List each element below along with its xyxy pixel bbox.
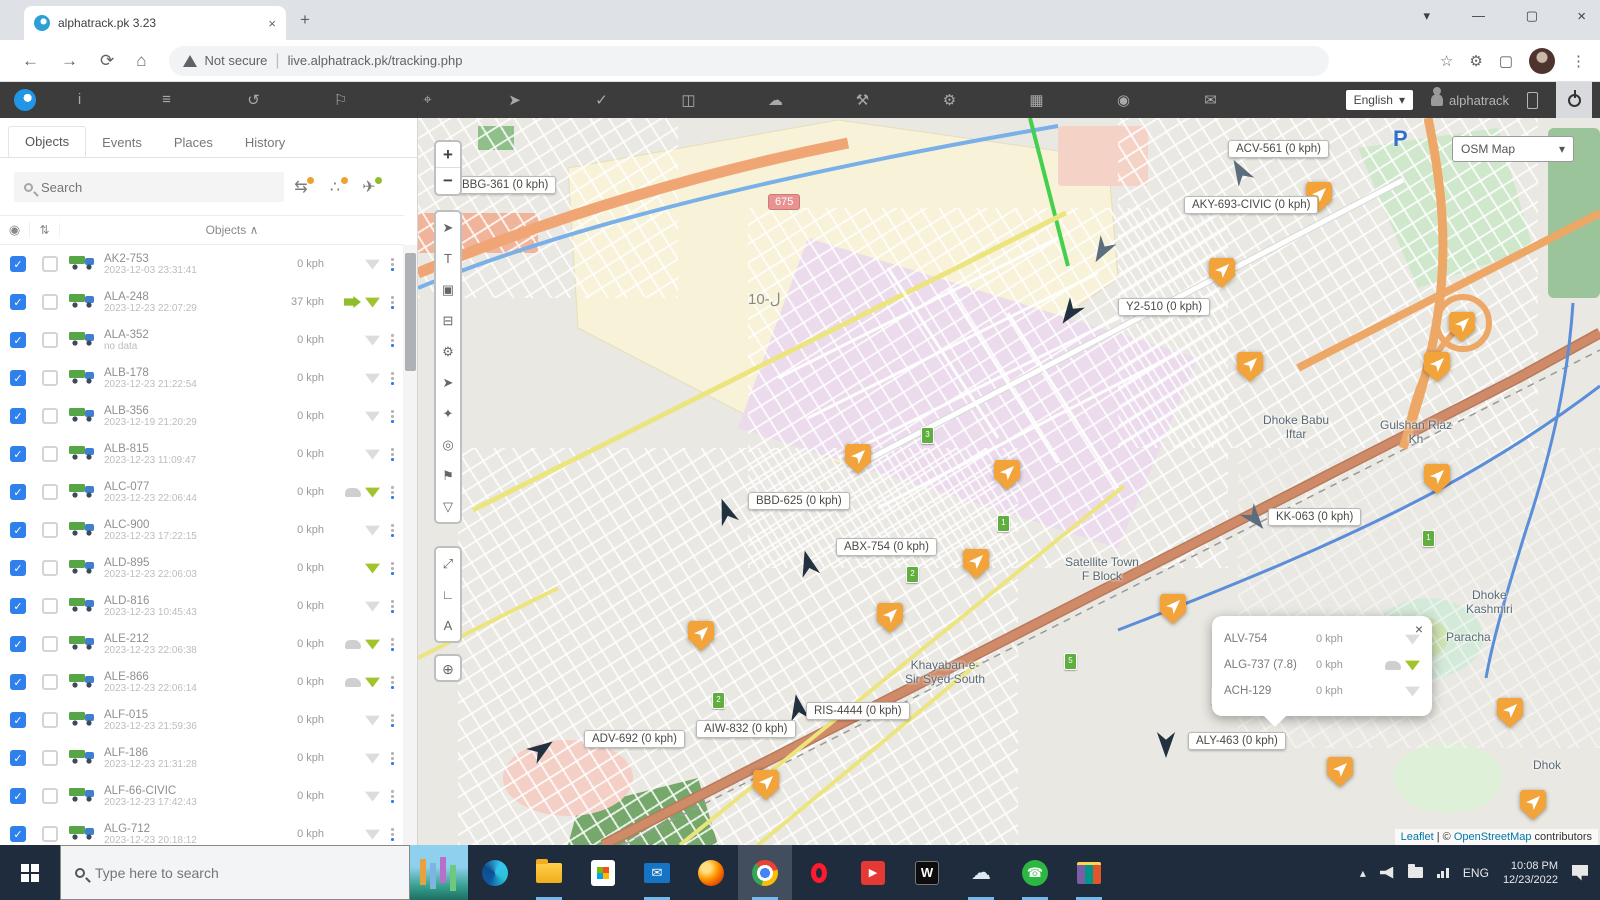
text-label-icon[interactable]: T [436,243,460,274]
taskbar-chrome-icon[interactable] [738,845,792,900]
visibility-checkbox[interactable]: ✓ [10,598,26,614]
truck-icon [68,405,98,428]
vehicle-marker[interactable] [1497,698,1523,728]
network-icon[interactable] [1437,868,1449,878]
back-button[interactable]: ← [22,51,39,71]
row-menu-icon[interactable] [380,296,404,309]
object-row[interactable]: ✓ ALF-66-CIVIC 2023-12-23 17:42:43 0 kph [0,777,404,815]
object-status-icons [324,601,380,612]
object-row[interactable]: ✓ ALF-186 2023-12-23 21:31:28 0 kph [0,739,404,777]
object-row[interactable]: ✓ ALE-212 2023-12-23 22:06:38 0 kph [0,625,404,663]
vehicle-marker[interactable] [1327,757,1353,787]
signal-gray-icon [365,753,380,764]
visibility-eye-icon[interactable]: ◉ [0,222,30,238]
vehicle-label[interactable]: KK-063 (0 kph) [1268,508,1361,526]
object-speed: 0 kph [272,600,324,612]
object-row[interactable]: ✓ ALB-178 2023-12-23 21:22:54 0 kph [0,359,404,397]
sidepanel-icon[interactable]: ▢ [1499,52,1513,70]
visibility-icon[interactable]: ◎ [436,429,460,460]
bookmarks-icon[interactable]: ✦ [436,398,460,429]
object-name: ALA-352 [104,329,272,341]
vehicle-marker[interactable] [1237,352,1263,382]
popup-close-icon[interactable]: × [1415,621,1423,637]
vehicles-sync-icon[interactable]: ⇆ [284,177,318,197]
arrow-green-icon [344,296,361,308]
popup-object-speed: 0 kph [1316,659,1364,671]
object-name: ALD-895 [104,557,272,569]
row-menu-icon[interactable] [380,410,404,423]
object-status-icons [324,259,380,270]
share-icon[interactable]: ∴ [318,177,352,197]
truck-icon [68,519,98,542]
taskbar-explorer-icon[interactable] [522,845,576,900]
window-close-button[interactable]: × [1577,8,1586,25]
object-speed: 0 kph [272,372,324,384]
vehicle-label[interactable]: Y2-510 (0 kph) [1118,298,1210,316]
row-menu-icon[interactable] [380,258,404,271]
object-name: ALG-712 [104,823,272,835]
vehicles-icon[interactable]: ⊟ [436,305,460,336]
profile-avatar[interactable] [1529,48,1555,74]
object-datetime: 2023-12-23 22:06:38 [104,645,272,656]
truck-icon [68,633,98,656]
places-icon[interactable]: ⚐ [297,91,384,109]
measure-icon[interactable]: ➤ [471,91,558,109]
zoom-icon[interactable]: ⌖ [384,91,471,109]
select-checkbox[interactable] [42,256,58,272]
object-row[interactable]: ✓ ALF-015 2023-12-23 21:59:36 0 kph [0,701,404,739]
truck-icon [68,823,98,846]
object-name: ALE-212 [104,633,272,645]
tab-title: alphatrack.pk 3.23 [58,16,260,30]
select-checkbox[interactable] [42,332,58,348]
vehicle-label[interactable]: AIW-832 (0 kph) [696,720,796,738]
app-logo-icon[interactable] [14,89,36,111]
objects-list-icon[interactable]: ≡ [123,91,210,109]
transit-stop-marker: 2 [906,566,919,583]
volume-icon[interactable] [1380,867,1394,879]
signal-gray-icon [1405,686,1420,697]
camera-icon[interactable]: ◉ [1080,91,1167,109]
vehicle-marker[interactable] [1449,312,1475,342]
settings-icon[interactable]: ⚙ [436,336,460,367]
vehicle-marker[interactable] [877,603,903,633]
system-tray: ▴ ENG 10:08 PM 12/23/2022 [1360,845,1600,900]
mobile-app-icon[interactable] [1527,92,1538,109]
object-row[interactable]: ✓ ALG-712 2023-12-23 20:18:12 0 kph [0,815,404,845]
place-name-label: Khayaban-e-Sir Syed South [905,658,985,686]
search-input[interactable] [41,180,241,195]
object-status-icons [324,525,380,536]
tab-places[interactable]: Places [158,128,229,157]
news-weather-widget[interactable] [410,845,468,900]
object-name: ALE-866 [104,671,272,683]
row-menu-icon[interactable] [380,676,404,689]
search-box[interactable] [14,172,284,202]
car-gray-icon [1385,661,1401,670]
objects-sort-header[interactable]: Objects ∧ [60,223,404,237]
visibility-checkbox[interactable]: ✓ [10,560,26,576]
row-menu-icon[interactable] [380,562,404,575]
sidebar-search-row: ⇆ ∴ ✈ [0,166,418,208]
truck-icon [68,709,98,732]
vehicle-marker[interactable] [1160,594,1186,624]
vehicle-marker[interactable] [1424,464,1450,494]
new-tab-button[interactable]: + [300,10,310,30]
signal-gray-icon [365,411,380,422]
object-row[interactable]: ✓ ALC-077 2023-12-23 22:06:44 0 kph [0,473,404,511]
explorer-tray-icon[interactable] [1408,867,1423,878]
language-value: English [1354,93,1393,107]
row-menu-icon[interactable] [380,752,404,765]
start-button[interactable] [0,845,60,900]
truck-icon [68,481,98,504]
tray-date: 12/23/2022 [1503,874,1558,886]
object-row[interactable]: ✓ ALD-895 2023-12-23 22:06:03 0 kph [0,549,404,587]
object-status-icons [324,449,380,460]
object-row[interactable]: ✓ AK2-753 2023-12-03 23:31:41 0 kph [0,245,404,283]
taskbar-media-icon[interactable]: ▶ [846,845,900,900]
vehicle-label[interactable]: ADV-692 (0 kph) [584,730,685,748]
visibility-checkbox[interactable]: ✓ [10,712,26,728]
osm-link[interactable]: OpenStreetMap [1454,831,1532,843]
select-checkbox[interactable] [42,408,58,424]
signal-green-icon [1405,660,1420,671]
select-checkbox[interactable] [42,750,58,766]
place-name-label: Satellite TownF Block [1065,555,1139,583]
taskbar-weather-icon[interactable]: ☁ [954,845,1008,900]
tab-objects[interactable]: Objects [8,126,86,157]
table-icon[interactable]: ▦ [993,91,1080,109]
object-name: ALC-077 [104,481,272,493]
row-menu-icon[interactable] [380,600,404,613]
vehicle-marker[interactable] [1520,790,1546,820]
url-text: live.alphatrack.pk/tracking.php [288,53,463,68]
place-name-label: Gulshan RiazKh [1380,418,1452,446]
object-status-icons [324,791,380,802]
map-zoom-control: + − [434,140,462,196]
tools-icon[interactable]: ⚒ [819,91,906,109]
object-name: ALF-186 [104,747,272,759]
signal-green-icon [365,487,380,498]
object-row[interactable]: ✓ ALA-248 2023-12-23 22:07:29 37 kph [0,283,404,321]
select-checkbox[interactable] [42,294,58,310]
truck-icon [68,785,98,808]
zoom-out-button[interactable]: − [436,168,460,194]
signal-green-icon [365,639,380,650]
row-menu-icon[interactable] [380,790,404,803]
select-checkbox[interactable] [42,446,58,462]
object-status-icons [324,296,380,308]
visibility-checkbox[interactable]: ✓ [10,674,26,690]
bookmark-star-icon[interactable]: ☆ [1440,52,1453,70]
object-status-icons [324,373,380,384]
select-checkbox[interactable] [42,370,58,386]
app-toolbar-right: English ▾ alphatrack [1346,82,1600,118]
object-status-icons [324,715,380,726]
object-datetime: 2023-12-23 22:07:29 [104,303,272,314]
select-checkbox[interactable] [42,560,58,576]
map-tools-panel-2: ⤢∟A [434,546,462,643]
tab-history[interactable]: History [229,128,301,157]
object-datetime: 2023-12-23 21:59:36 [104,721,272,732]
row-menu-icon[interactable] [380,486,404,499]
language-indicator[interactable]: ENG [1463,866,1489,880]
vehicle-marker[interactable] [963,549,989,579]
signal-gray-icon [365,791,380,802]
reload-button[interactable]: ⟳ [100,51,114,71]
route-shield: 675 [768,194,800,210]
vehicle-label[interactable]: RIS-4444 (0 kph) [806,702,910,720]
visibility-checkbox[interactable]: ✓ [10,408,26,424]
clock[interactable]: 10:08 PM 12/23/2022 [1503,859,1558,887]
transit-stop-marker: 1 [997,515,1010,532]
object-datetime: 2023-12-03 23:31:41 [104,265,272,276]
car-gray-icon [345,678,361,687]
action-center-icon[interactable] [1572,865,1588,881]
vehicle-label[interactable]: ACV-561 (0 kph) [1228,140,1329,158]
taskbar-store-icon[interactable] [576,845,630,900]
visibility-checkbox[interactable]: ✓ [10,484,26,500]
object-name: ALB-815 [104,443,272,455]
truck-icon [68,253,98,276]
signal-gray-icon [365,373,380,384]
popup-row[interactable]: ALG-737 (7.8)0 kph [1224,652,1420,678]
taskbar-search[interactable] [60,845,410,900]
user-icon [1431,94,1443,106]
object-name: ALC-900 [104,519,272,531]
settings-icon[interactable]: ⚙ [906,91,993,109]
row-menu-icon[interactable] [380,714,404,727]
row-menu-icon[interactable] [380,448,404,461]
tab-close-icon[interactable]: × [268,16,276,31]
leaflet-link[interactable]: Leaflet [1401,831,1434,843]
select-checkbox[interactable] [42,788,58,804]
home-button[interactable]: ⌂ [136,51,146,71]
place-name-label: Paracha [1446,630,1491,644]
layer-value: OSM Map [1461,142,1515,156]
object-speed: 0 kph [272,486,324,498]
select-checkbox[interactable] [42,826,58,842]
username: alphatrack [1449,93,1509,108]
vehicle-label[interactable]: BBD-625 (0 kph) [748,492,850,510]
truck-icon [68,671,98,694]
taskbar-search-input[interactable] [95,865,375,881]
sidebar-tabs: Objects Events Places History [0,126,418,158]
object-row[interactable]: ✓ ALD-816 2023-12-23 10:45:43 0 kph [0,587,404,625]
object-status-icons [324,563,380,574]
visibility-checkbox[interactable]: ✓ [10,332,26,348]
draw-a-icon[interactable]: A [436,610,460,641]
objects-sidebar: Objects Events Places History ⇆ ∴ ✈ ◉ ⇅ … [0,118,418,845]
browser-tabstrip: alphatrack.pk 3.23 × + ▾ — ▢ × [0,0,1600,40]
select-checkbox[interactable] [42,712,58,728]
visibility-checkbox[interactable]: ✓ [10,750,26,766]
extensions-icon[interactable]: ⚙ [1469,52,1482,70]
chevron-down-icon: ▾ [1559,142,1565,156]
taskbar-edge-icon[interactable] [468,845,522,900]
car-gray-icon [345,640,361,649]
map-layer-dropdown[interactable]: OSM Map ▾ [1452,136,1574,162]
taskbar-firefox-icon[interactable] [684,845,738,900]
taskbar-whatsapp-icon[interactable]: ☎ [1008,845,1062,900]
object-name: ALF-66-CIVIC [104,785,272,797]
vehicle-marker[interactable] [753,770,779,800]
visibility-checkbox[interactable]: ✓ [10,826,26,842]
measure-icon[interactable]: ➤ [436,367,460,398]
truck-icon [68,329,98,352]
select-checkbox[interactable] [42,484,58,500]
locate-icon[interactable]: ➤ [436,212,460,243]
object-speed: 0 kph [272,714,324,726]
browser-menu-icon[interactable]: ⋮ [1571,52,1586,70]
select-checkbox[interactable] [42,598,58,614]
vehicle-marker[interactable] [688,621,714,651]
follow-plane-icon[interactable]: ✈ [352,177,386,197]
row-menu-icon[interactable] [380,372,404,385]
row-menu-icon[interactable] [380,828,404,841]
vehicle-marker[interactable] [994,460,1020,490]
truck-icon [68,557,98,580]
object-speed: 0 kph [272,752,324,764]
object-row[interactable]: ✓ ALC-900 2023-12-23 17:22:15 0 kph [0,511,404,549]
signal-gray-icon [365,449,380,460]
visibility-checkbox[interactable]: ✓ [10,522,26,538]
visibility-checkbox[interactable]: ✓ [10,636,26,652]
object-speed: 0 kph [272,524,324,536]
visibility-checkbox[interactable]: ✓ [10,294,26,310]
taskbar-opera-icon[interactable] [792,845,846,900]
browser-toolbar: ← → ⟳ ⌂ Not secure | live.alphatrack.pk/… [0,40,1600,82]
object-speed: 0 kph [272,410,324,422]
object-datetime: 2023-12-23 10:45:43 [104,607,272,618]
object-datetime: 2023-12-23 22:06:14 [104,683,272,694]
map-region-label: 10-ل [748,290,781,308]
history-icon[interactable]: ↺ [210,91,297,109]
place-name-label: Dhoke BabuIftar [1263,413,1329,441]
vehicle-marker[interactable] [1424,352,1450,382]
object-datetime: 2023-12-23 17:42:43 [104,797,272,808]
object-datetime: 2023-12-23 22:06:03 [104,569,272,580]
signal-green-icon [365,677,380,688]
ruler-corner-icon[interactable]: ∟ [436,579,460,610]
window-maximize-button[interactable]: ▢ [1526,8,1538,24]
chat-icon[interactable]: ✉ [1167,91,1254,109]
taskbar-mail-icon[interactable]: ✉ [630,845,684,900]
taskbar-winrar-icon[interactable] [1062,845,1116,900]
language-dropdown[interactable]: English ▾ [1346,90,1413,110]
object-row[interactable]: ✓ ALA-352 no data 0 kph [0,321,404,359]
object-datetime: no data [104,341,272,352]
row-menu-icon[interactable] [380,334,404,347]
follow-column-icon[interactable]: ⇅ [30,223,60,237]
vehicle-label[interactable]: AKY-693-CIVIC (0 kph) [1184,196,1318,214]
tab-events[interactable]: Events [86,128,158,157]
object-name: ALA-248 [104,291,272,303]
window-minimize-button[interactable]: — [1472,8,1485,23]
reports-icon[interactable]: ◫ [645,91,732,109]
car-gray-icon [345,488,361,497]
info-icon[interactable]: i [36,91,123,109]
popup-row[interactable]: ACH-1290 kph [1224,678,1420,704]
truck-icon [68,747,98,770]
weather-icon[interactable]: ☁ [732,91,819,109]
objects-list: ✓ AK2-753 2023-12-03 23:31:41 0 kph ✓ [0,245,404,845]
object-speed: 0 kph [272,334,324,346]
minimap-globe-button[interactable]: ⊕ [434,654,462,682]
address-bar[interactable]: Not secure | live.alphatrack.pk/tracking… [169,46,1329,76]
signal-gray-icon [365,829,380,840]
browser-toolbar-right: ☆ ⚙ ▢ ⋮ [1440,48,1586,74]
popup-object-name: ALV-754 [1224,633,1316,645]
sidebar-scrollbar[interactable] [403,245,417,845]
map-canvas[interactable]: 10-ل 675 P + − ➤T▣⊟⚙➤✦◎⚑▽ ⤢∟A ⊕ OSM Map … [418,118,1600,845]
not-secure-warning-icon[interactable] [183,55,197,67]
browser-tab[interactable]: alphatrack.pk 3.23 × [24,6,286,40]
select-checkbox[interactable] [42,522,58,538]
visibility-checkbox[interactable]: ✓ [10,788,26,804]
logout-button[interactable] [1556,82,1592,118]
clusters-icon[interactable]: ▣ [436,274,460,305]
tab-search-icon[interactable]: ▾ [1423,8,1430,24]
place-name-label: Dhok [1533,758,1561,772]
row-menu-icon[interactable] [380,638,404,651]
search-icon [75,868,85,878]
object-datetime: 2023-12-23 21:31:28 [104,759,272,770]
taskbar-wapp-icon[interactable]: W [900,845,954,900]
power-icon [1568,94,1581,107]
vehicle-marker[interactable] [1209,258,1235,288]
vehicle-popup: × ALV-7540 kphALG-737 (7.8)0 kphACH-1290… [1212,616,1432,716]
object-name: ALD-816 [104,595,272,607]
user-menu[interactable]: alphatrack [1431,93,1509,108]
zoom-in-button[interactable]: + [436,142,460,168]
select-checkbox[interactable] [42,674,58,690]
forward-button[interactable]: → [61,51,78,71]
signal-gray-icon [365,715,380,726]
tab-favicon [34,15,50,31]
tasks-icon[interactable]: ✓ [558,91,645,109]
visibility-checkbox[interactable]: ✓ [10,256,26,272]
select-checkbox[interactable] [42,636,58,652]
object-datetime: 2023-12-23 11:09:47 [104,455,272,466]
row-menu-icon[interactable] [380,524,404,537]
object-status-icons [324,677,380,688]
object-row[interactable]: ✓ ALB-356 2023-12-19 21:20:29 0 kph [0,397,404,435]
visibility-checkbox[interactable]: ✓ [10,446,26,462]
signal-green-icon [365,297,380,308]
object-row[interactable]: ✓ ALE-866 2023-12-23 22:06:14 0 kph [0,663,404,701]
signal-green-icon [365,563,380,574]
vehicle-label[interactable]: ALY-463 (0 kph) [1188,732,1286,750]
transit-stop-marker: 1 [1422,530,1435,547]
scrollbar-thumb[interactable] [405,253,416,371]
vehicle-label[interactable]: BBG-361 (0 kph) [454,176,556,194]
poi-icon[interactable]: ⚑ [436,460,460,491]
vehicle-marker[interactable] [845,444,871,474]
visibility-checkbox[interactable]: ✓ [10,370,26,386]
object-datetime: 2023-12-23 21:22:54 [104,379,272,390]
filter-icon[interactable]: ▽ [436,491,460,522]
signal-gray-icon [365,259,380,270]
object-speed: 0 kph [272,676,324,688]
object-row[interactable]: ✓ ALB-815 2023-12-23 11:09:47 0 kph [0,435,404,473]
popup-row[interactable]: ALV-7540 kph [1224,626,1420,652]
vehicle-label[interactable]: ABX-754 (0 kph) [836,538,937,556]
fullscreen-icon[interactable]: ⤢ [436,548,460,579]
list-header: ◉ ⇅ Objects ∧ [0,215,404,245]
tray-chevron-icon[interactable]: ▴ [1360,866,1366,880]
